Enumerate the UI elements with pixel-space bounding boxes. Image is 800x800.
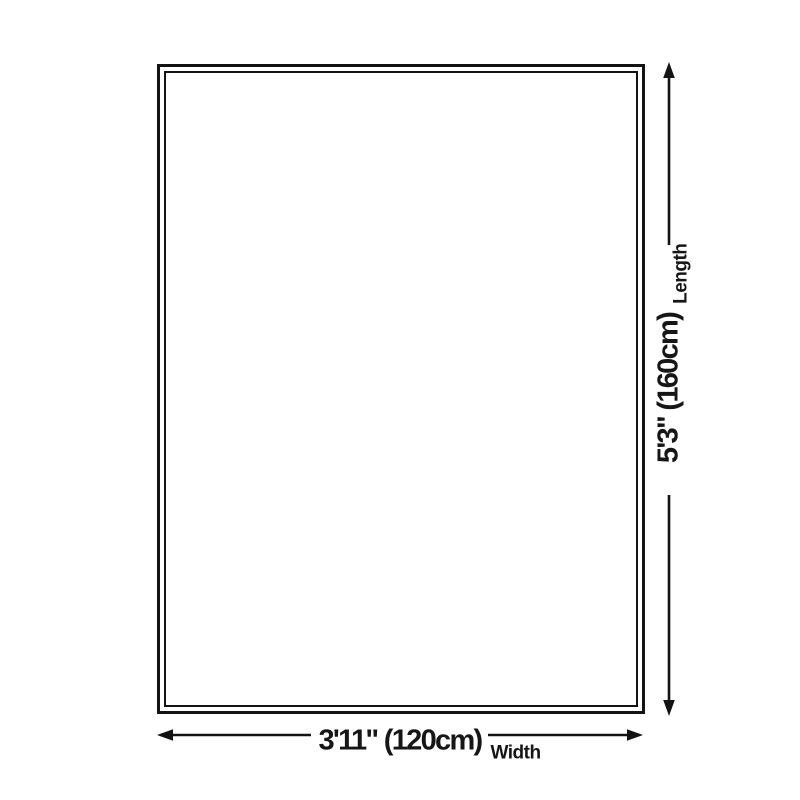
width-arrowhead-left [157, 729, 173, 741]
width-dimension-label: 3'11" (120cm) Width [318, 727, 481, 756]
width-value: 3'11" (120cm) [318, 727, 481, 756]
length-value: 5'3" (160cm) [655, 313, 684, 463]
length-dimension-label: 5'3" (160cm) Length [655, 313, 684, 463]
width-axis-label: Width [491, 744, 541, 763]
width-arrowhead-right [627, 729, 643, 741]
length-axis-label: Length [672, 244, 691, 304]
length-arrowhead-down [663, 700, 675, 716]
dimension-diagram: 5'3" (160cm) Length 3'11" (120cm) Width [0, 0, 800, 800]
length-arrowhead-up [663, 62, 675, 78]
